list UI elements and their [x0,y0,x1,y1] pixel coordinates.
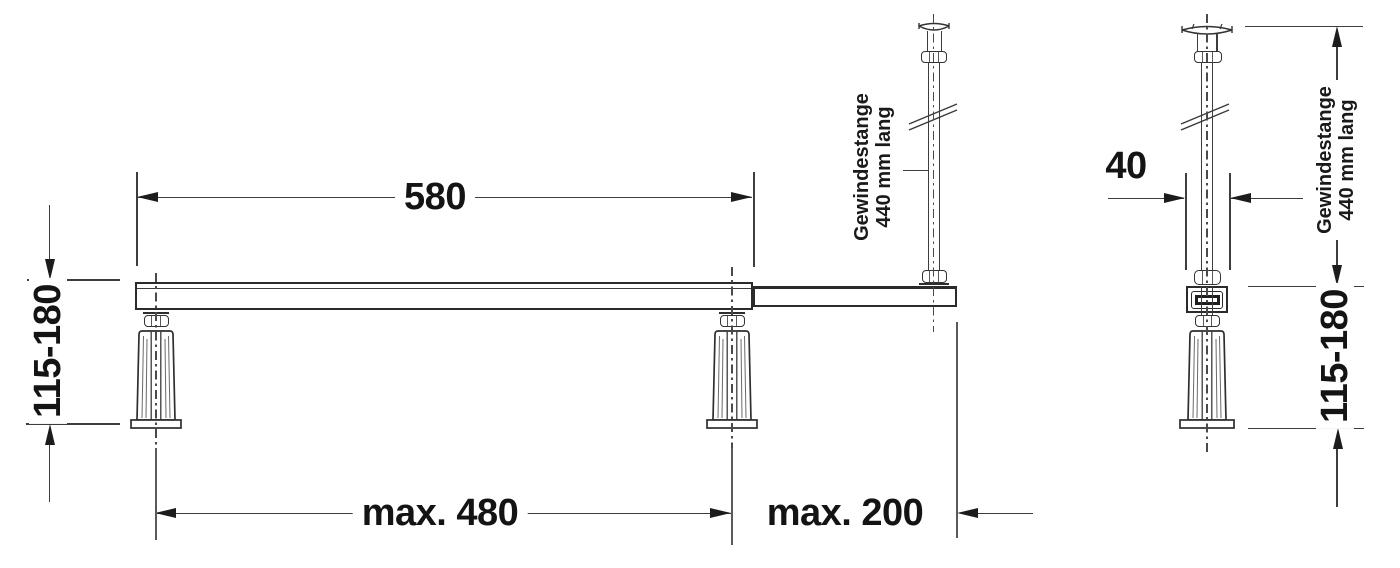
square-tube-rod-right [1212,286,1213,315]
dim-115-arrow-down [45,259,55,280]
dim-40-ext-left [1185,173,1186,270]
rod-bottom-nut-facet-b [938,271,939,282]
rod-label-leader-line [903,170,929,171]
dim-440-tick-top [1245,26,1363,27]
rod-side-shaft-left [1201,62,1202,271]
rod-length-label-front: Gewindestange 440 mm lang [850,89,896,245]
rod-cap-stem-right [941,31,942,52]
technical-drawing: Gewindestange 440 mm lang 580 115-180 ma… [0,0,1400,568]
rod-bottom-washer [919,283,949,285]
rod-label-side-line1: Gewindestange [1314,86,1336,234]
dim-115-line-bottom [49,445,50,502]
foot-left-centerline [155,273,156,448]
dim-580-arrow-right [731,192,752,202]
foot-right-centerline [731,267,732,448]
foot-right-extension-line [731,448,732,545]
dim-40-arrow-left [1164,193,1185,203]
square-tube-rod-left [1201,286,1202,315]
rod-side-shaft-right [1212,62,1213,271]
rod-side-lower-nut-facet-b [1212,271,1213,284]
rod-label-front-line2: 440 mm lang [873,106,895,227]
dim-440-line-bottom [1336,240,1337,265]
dim-480-arrow-right [710,508,731,518]
dim-580-text: 580 [395,178,475,216]
dim-200-arrow-right [957,508,978,518]
dim-max-200-text: max. 200 [758,494,933,532]
rod-top-nut-facet-a [929,52,930,62]
dim-40-text: 40 [1101,147,1150,185]
dim-580-ext-right [753,172,754,267]
rod-front-centerline [933,14,934,332]
foot-left-nut-facet-b [160,316,161,326]
foot-left-extension-line [155,448,156,540]
rod-side-lower-nut-facet-a [1202,271,1203,284]
rod-side-stem-right [1216,33,1217,52]
foot-right-nut-facet-b [736,316,737,326]
dim-115-line-top [49,205,50,260]
dim-580-arrow-left [137,192,158,202]
bar-end-extension-line [956,322,957,538]
foot-left-nut-facet-a [151,316,152,326]
rod-side-centerline [1206,14,1207,452]
rod-side-top-nut-facet-b [1212,52,1213,62]
rod-shaft-right [939,62,940,271]
foot-right-nut-facet-a [727,316,728,326]
rod-shaft-left [928,62,929,271]
rod-length-label-side: Gewindestange 440 mm lang [1313,82,1359,238]
rod-top-nut [921,51,947,63]
rod-bottom-nut-facet-a [929,271,930,282]
dim-max-480-text: max. 480 [353,494,528,532]
dim-115r-line-bottom [1336,449,1337,507]
rod-side-stem-left [1197,33,1198,52]
rod-bottom-nut [922,270,947,283]
rod-side-break-symbol [1180,99,1230,131]
rod-top-nut-facet-b [938,52,939,62]
dim-115r-arrow-up [1333,428,1343,449]
foot-side-nut-facet-b [1211,316,1212,326]
rod-cap-stem-left [927,31,928,52]
dim-115-arrow-up [45,424,55,445]
telescopic-extension-bar [753,286,957,307]
dim-440-arrow-up [1332,26,1342,47]
dim-440-line-top [1336,47,1337,80]
rod-label-front-line1: Gewindestange [851,93,873,241]
dim-480-arrow-left [155,508,176,518]
dim-200-tail [978,513,1033,514]
dim-115-180-left-text: 115-180 [29,278,67,424]
dim-40-ext-right [1229,173,1230,270]
dim-580-ext-left [136,172,137,266]
rod-label-side-line2: 440 mm lang [1336,99,1358,220]
support-bar [135,282,753,310]
rod-cap [917,20,951,36]
support-bar-inner-edge [137,288,751,289]
rod-side-top-nut-facet-a [1202,52,1203,62]
dim-40-arrow-right [1230,193,1251,203]
foot-side-nut-facet-a [1203,316,1204,326]
dim-115-180-right-text: 115-180 [1316,283,1354,429]
